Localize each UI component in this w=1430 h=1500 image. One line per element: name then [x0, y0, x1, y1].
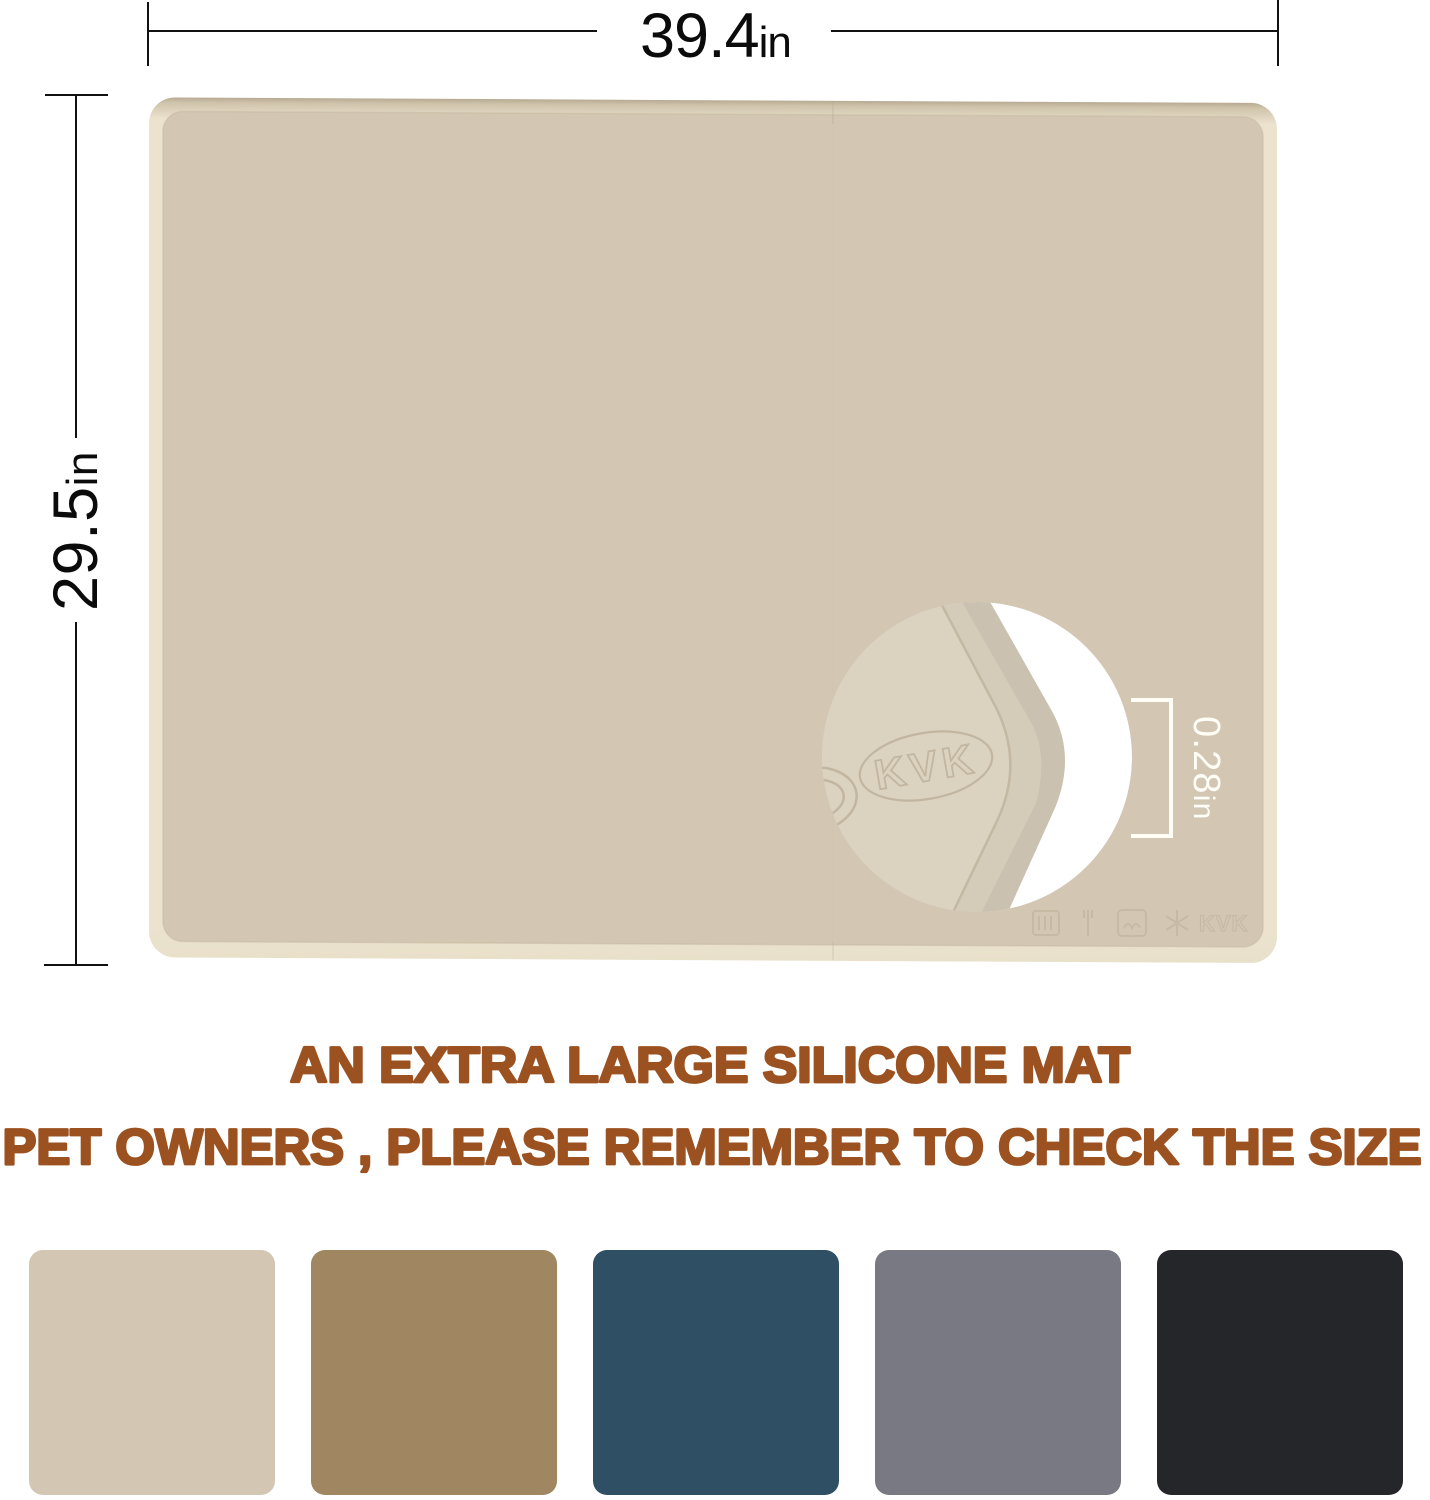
svg-text:0.28in: 0.28in	[1185, 716, 1227, 821]
svg-text:PET OWNERS , PLEASE REMEMBER T: PET OWNERS , PLEASE REMEMBER TO CHECK TH…	[3, 1119, 1422, 1175]
svg-text:KVK: KVK	[1199, 911, 1248, 936]
svg-text:AN EXTRA LARGE SILICONE MAT: AN EXTRA LARGE SILICONE MAT	[290, 1037, 1130, 1093]
